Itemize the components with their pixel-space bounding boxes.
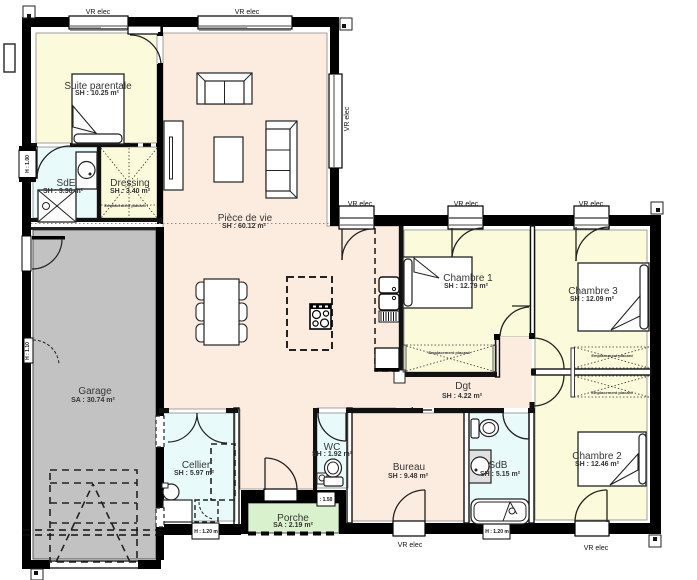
svg-text:H : 1.20 m: H : 1.20 m	[194, 529, 218, 535]
svg-text:: 1.50: : 1.50	[320, 497, 333, 503]
svg-text:Emplacement placard: Emplacement placard	[591, 353, 633, 358]
svg-text:VR elec: VR elec	[344, 106, 351, 131]
svg-text:VR elec: VR elec	[454, 201, 479, 208]
svg-text:VR elec: VR elec	[398, 542, 423, 549]
svg-text:Emplacement placard: Emplacement placard	[104, 203, 146, 208]
svg-text:Bureau: Bureau	[393, 462, 425, 473]
svg-text:SH : 5.15 m²: SH : 5.15 m²	[480, 471, 521, 478]
svg-text:VR elec: VR elec	[348, 201, 373, 208]
svg-text:Emplacement placard: Emplacement placard	[591, 390, 633, 395]
svg-text:SH : 3.36 m²: SH : 3.36 m²	[43, 188, 84, 195]
svg-text:SH : 5.97 m²: SH : 5.97 m²	[174, 470, 215, 477]
svg-text:Emplacement placard: Emplacement placard	[428, 350, 470, 355]
svg-text:SH : 12.79 m²: SH : 12.79 m²	[444, 283, 489, 290]
svg-text:SH : 12.46 m²: SH : 12.46 m²	[575, 461, 620, 468]
svg-text:SH : 12.09 m²: SH : 12.09 m²	[570, 296, 615, 303]
svg-text:SH : 9.48 m²: SH : 9.48 m²	[388, 473, 429, 480]
svg-text:Dgt: Dgt	[455, 381, 471, 392]
svg-text:SdB: SdB	[489, 460, 508, 471]
svg-text:SH : 10.25 m²: SH : 10.25 m²	[75, 90, 120, 97]
svg-text:SH : 60.12 m²: SH : 60.12 m²	[222, 223, 267, 230]
svg-text:Garage: Garage	[78, 386, 112, 397]
svg-text:H : 1.00: H : 1.00	[25, 155, 31, 173]
svg-text:SH : 3.40 m²: SH : 3.40 m²	[110, 188, 151, 195]
svg-text:VR elec: VR elec	[579, 201, 604, 208]
svg-text:VR elec: VR elec	[584, 545, 609, 552]
svg-text:SH : 1.92 m²: SH : 1.92 m²	[312, 451, 353, 458]
svg-text:SH : 4.22 m²: SH : 4.22 m²	[442, 393, 483, 400]
svg-text:H : 1.20 m: H : 1.20 m	[485, 529, 509, 535]
svg-text:SA : 2.19 m²: SA : 2.19 m²	[273, 522, 313, 529]
svg-text:H : 1.10: H : 1.10	[25, 342, 31, 360]
svg-text:SA : 30.74 m²: SA : 30.74 m²	[71, 397, 115, 404]
svg-text:VR elec: VR elec	[235, 9, 260, 16]
svg-text:VR elec: VR elec	[86, 9, 111, 16]
